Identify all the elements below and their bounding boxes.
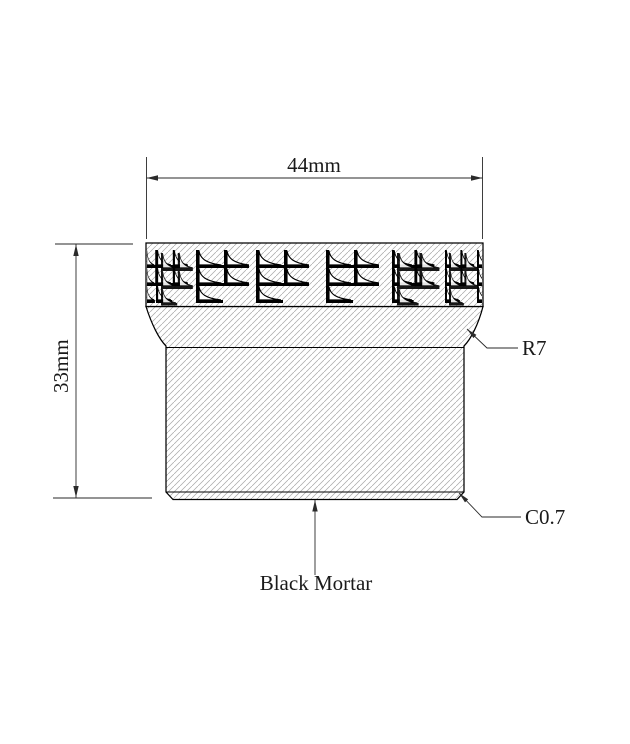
mortar-cross-section-drawing: 44mm 33mm R7 C0.7 Black Mortar (0, 0, 630, 744)
dim-arrow-down (73, 486, 78, 498)
leader-arrow-material (312, 500, 317, 512)
dim-arrow-left (147, 175, 159, 180)
width-dimension: 44mm (147, 153, 483, 239)
material-callout: Black Mortar (260, 500, 373, 595)
technical-drawing-canvas: 44mm 33mm R7 C0.7 Black Mortar (0, 0, 630, 744)
width-dimension-label: 44mm (287, 153, 341, 177)
chamfer-callout-label: C0.7 (525, 505, 565, 529)
material-label: Black Mortar (260, 571, 373, 595)
part-body-section (146, 307, 483, 500)
radius-callout-label: R7 (522, 336, 547, 360)
chamfer-callout: C0.7 (459, 493, 565, 529)
dim-arrow-up (73, 245, 78, 257)
radius-callout: R7 (467, 329, 547, 360)
height-dimension: 33mm (49, 244, 152, 498)
height-dimension-label: 33mm (49, 339, 73, 393)
dim-arrow-right (471, 175, 483, 180)
